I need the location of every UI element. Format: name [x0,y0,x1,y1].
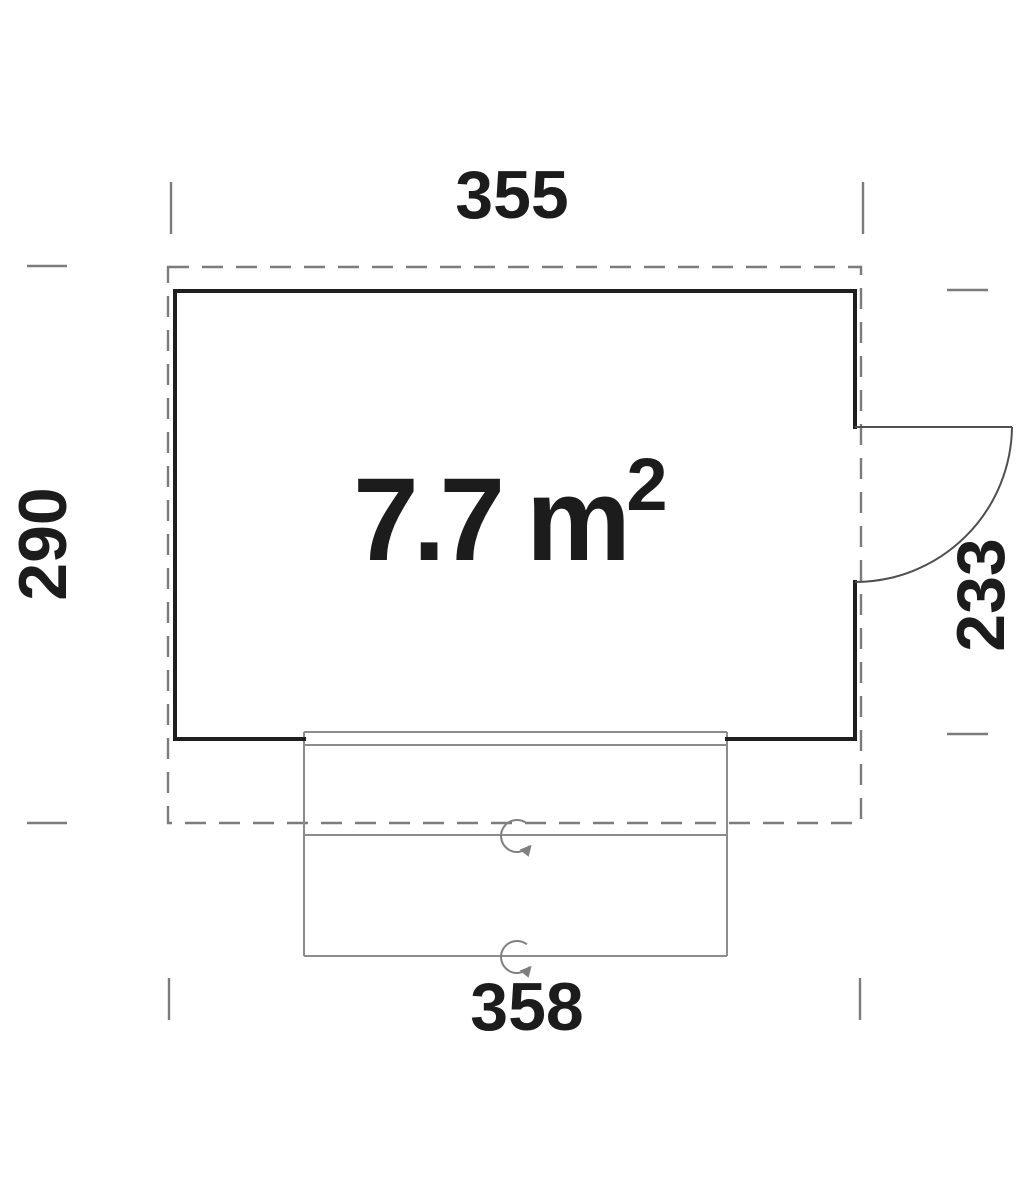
dimension-left-label: 290 [5,487,81,600]
floor-plan: 355 290 233 358 7.7 m 2 [0,0,1029,1200]
dimension-bottom-label: 358 [470,969,583,1045]
circular-arrow-head-icon [520,845,532,857]
area-label-group: 7.7 m 2 [353,443,667,586]
dimension-top-label: 355 [455,157,568,233]
dimension-right-label: 233 [943,538,1019,651]
area-label-superscript: 2 [626,443,667,526]
terrace-markers [501,820,532,978]
area-label: 7.7 m [353,454,625,586]
terrace [304,732,727,956]
dimension-ticks [27,182,988,1020]
floor-plan-drawing: 355 290 233 358 7.7 m 2 [0,0,1029,1200]
